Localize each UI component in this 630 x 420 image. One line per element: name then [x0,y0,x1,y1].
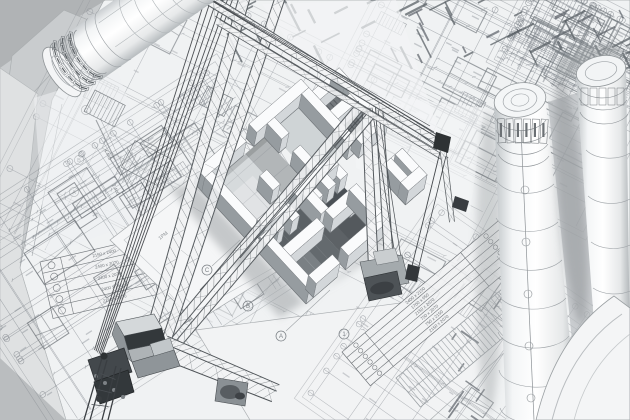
svg-text:C: C [205,268,210,274]
svg-text:A: A [279,334,283,340]
svg-text:B: B [246,304,250,310]
